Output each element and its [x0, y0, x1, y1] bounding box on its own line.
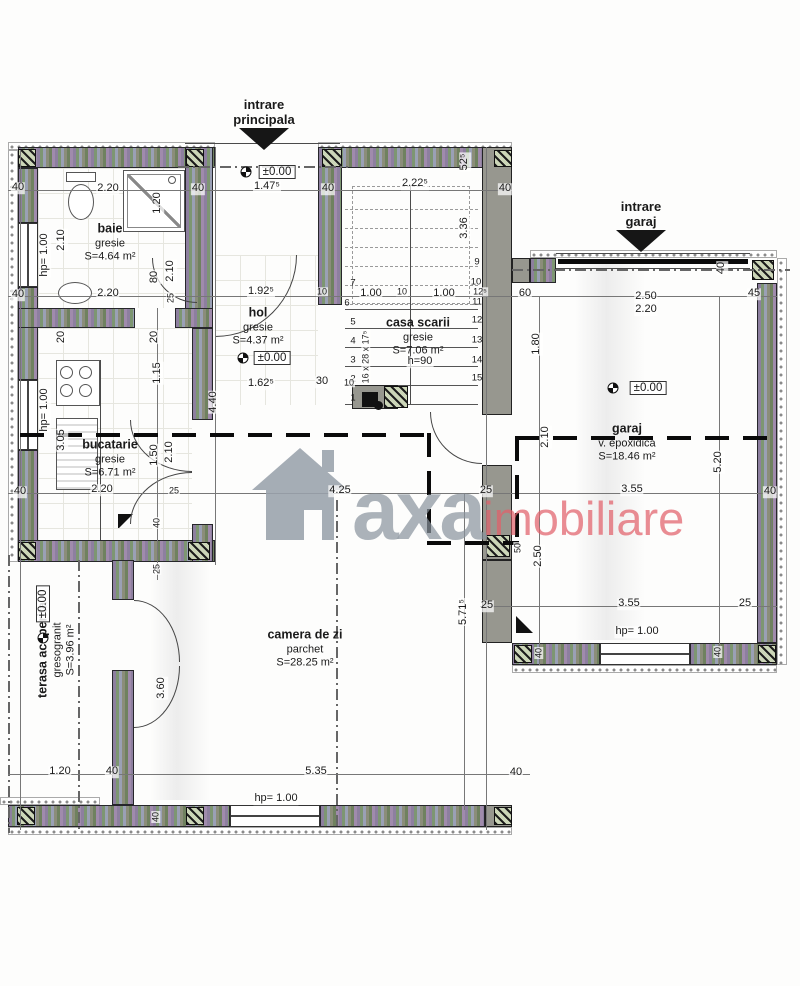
column-segment	[322, 149, 342, 167]
column-segment	[186, 149, 204, 167]
entrance-arrow-icon	[239, 128, 289, 150]
room-finish: gresie	[232, 321, 283, 335]
dimension-label: 25	[168, 486, 180, 495]
section-line	[20, 433, 430, 437]
dimension-label: 2.20	[96, 183, 119, 195]
dimension-label: 60	[518, 288, 532, 300]
dimension-label: 1.47⁵	[253, 181, 281, 193]
entrance-label: intrareprincipala	[233, 98, 294, 128]
dimension-label: 2.10	[56, 228, 68, 251]
wall-segment	[18, 540, 215, 562]
stair-divider	[410, 186, 411, 404]
stair-tread	[345, 285, 478, 286]
entrance-label-line: intrare	[233, 98, 294, 113]
column-segment	[188, 542, 210, 560]
burner	[79, 366, 92, 379]
stair-number: 12	[472, 315, 483, 326]
dimension-label: 2.22⁵	[401, 178, 429, 190]
stair-number: 11	[472, 297, 482, 308]
room-finish: parchet	[267, 643, 342, 657]
dimension-label: 40	[321, 183, 335, 195]
insulation-segment	[777, 258, 787, 665]
dim-line	[8, 493, 777, 494]
dimension-label: 40	[713, 646, 722, 658]
room-finish: v. epoxidica	[598, 437, 655, 451]
dimension-label: 20	[149, 330, 161, 344]
wall-segment	[112, 560, 134, 600]
column-segment	[758, 645, 776, 663]
column-segment	[384, 386, 408, 408]
room-name: bucatarie	[82, 437, 138, 453]
window-segment	[18, 380, 38, 450]
dimension-label: hp= 1.00	[614, 626, 659, 638]
room-area: S=4.37 m²	[232, 335, 283, 349]
entrance-label: intraregaraj	[621, 200, 661, 230]
dimension-label: 2.10	[164, 440, 176, 463]
stair-number: 15	[472, 373, 483, 384]
dimension-label: 20	[56, 330, 68, 344]
dimension-label: 1.80	[531, 332, 543, 355]
wall-segment	[175, 308, 213, 328]
dimension-label: 1.62⁵	[247, 378, 275, 390]
room-label-casa-scarii: casa scariigresieS=7.06 m²	[386, 315, 450, 358]
wall-block	[362, 392, 378, 407]
wall-segment	[112, 670, 134, 805]
level-marker-label: ±0.00	[254, 351, 291, 365]
level-marker-label: ±0.00	[630, 381, 667, 395]
dimension-label: 25	[166, 292, 175, 304]
dimension-label: 25	[479, 485, 493, 497]
wall-segment	[757, 283, 777, 643]
level-marker-label: ±0.00	[259, 165, 296, 179]
level-marker-icon	[241, 167, 252, 178]
stair-tread	[345, 304, 478, 305]
dimension-label: 2.20	[90, 484, 113, 496]
dimension-label: 2.20	[634, 304, 657, 316]
dimension-label: 10	[343, 378, 355, 387]
dimension-label: 40	[716, 261, 728, 275]
floor-plan-canvas: 402.20401.47⁵402.22⁵52⁵401.202.10hp= 1.0…	[0, 0, 800, 986]
dimension-label: 5.20	[713, 450, 725, 473]
door-arc-garaj	[430, 412, 482, 464]
dimension-label: 40	[11, 289, 25, 301]
dimension-label: 2.50	[634, 291, 657, 303]
window-segment	[600, 643, 690, 665]
axis-line	[512, 269, 790, 271]
room-finish: gresie	[386, 331, 450, 345]
dimension-label: 40	[152, 517, 161, 529]
room-label-baie: baiegresieS=4.64 m²	[84, 221, 135, 264]
stair-number: 13	[472, 335, 483, 346]
level-marker-label: ±0.00	[36, 586, 50, 623]
entrance-arrow-icon	[616, 230, 666, 252]
room-finish: gresogranit	[51, 602, 65, 698]
dim-line	[771, 490, 772, 610]
room-name: garaj	[598, 421, 655, 437]
dimension-label: 1.50	[149, 443, 161, 466]
room-area: S=6.71 m²	[82, 467, 138, 481]
level-marker-icon	[238, 353, 249, 364]
stair-number: 9	[474, 257, 479, 268]
column-segment	[486, 535, 510, 557]
dimension-label: 16 x 28 x 17⁵	[361, 330, 370, 385]
stair-tread	[345, 209, 478, 210]
dimension-label: 1.20	[152, 191, 164, 214]
stair-number: 4	[350, 336, 355, 347]
stair-tread	[345, 247, 478, 248]
dimension-label: 40	[498, 183, 512, 195]
room-finish: gresie	[82, 453, 138, 467]
wall-segment	[318, 147, 342, 305]
shower-drain	[168, 176, 176, 184]
window-segment	[18, 223, 38, 287]
dimension-label: 40	[534, 647, 543, 659]
burner	[60, 384, 73, 397]
room-area: S=4.64 m²	[84, 251, 135, 265]
dimension-label: 2.20	[96, 288, 119, 300]
room-name: camera de zi	[267, 627, 342, 643]
dimension-label: 40	[13, 486, 27, 498]
stair-number: 7	[350, 278, 355, 289]
dimension-label: 10	[316, 287, 328, 296]
dimension-label: hp= 1.00	[39, 232, 51, 277]
insulation-segment	[0, 797, 100, 805]
dimension-label: 25	[152, 563, 161, 575]
dimension-label: 3.36	[459, 216, 471, 239]
burner	[60, 366, 73, 379]
dimension-label: 1.00	[359, 288, 382, 300]
section-line	[427, 433, 431, 545]
dimension-label: 1.15	[152, 361, 164, 384]
dim-line	[215, 147, 216, 565]
dimension-label: 40	[105, 766, 119, 778]
dimension-label: 5.35	[304, 766, 327, 778]
room-area: S=18.46 m²	[598, 451, 655, 465]
dimension-label: 2.10	[540, 425, 552, 448]
dimension-label: 30	[315, 376, 329, 388]
insulation-segment	[8, 827, 512, 835]
dimension-label: 3.55	[620, 484, 643, 496]
dimension-label: 2.50	[533, 544, 545, 567]
room-label-garaj: garajv. epoxidicaS=18.46 m²	[598, 421, 655, 464]
insulation-segment	[8, 150, 18, 562]
insulation-segment	[512, 665, 777, 673]
section-line	[427, 541, 519, 545]
section-line	[515, 437, 519, 545]
dim-line	[719, 296, 720, 665]
column-segment	[514, 645, 532, 663]
wall-segment	[18, 287, 38, 380]
dimension-label: 50	[513, 542, 522, 554]
dimension-label: 1.92⁵	[247, 286, 275, 298]
dimension-label: 4.25	[328, 485, 351, 497]
dimension-label: 4.40	[208, 390, 220, 413]
level-marker-icon	[38, 633, 49, 644]
dimension-label: 2.10	[165, 259, 177, 282]
dimension-label: 40	[191, 183, 205, 195]
burner	[79, 384, 92, 397]
room-label-hol: holgresieS=4.37 m²	[232, 305, 283, 348]
dimension-label: 25	[738, 598, 752, 610]
wall-segment	[18, 168, 38, 223]
terrace-edge	[8, 555, 10, 833]
room-area: S=28.25 m²	[267, 657, 342, 671]
dimension-label: 40	[11, 182, 25, 194]
stair-number: 6	[344, 298, 349, 309]
corner-marker	[516, 616, 533, 633]
column-segment	[186, 807, 204, 825]
stair-number: 1	[350, 393, 355, 404]
dimension-label: 3.55	[617, 598, 640, 610]
dimension-label: 45	[747, 288, 761, 300]
entrance-label-line: principala	[233, 113, 294, 128]
window-segment	[230, 805, 320, 827]
room-name: baie	[84, 221, 135, 237]
dimension-label: 52⁵	[459, 153, 471, 172]
room-label-bucatarie: bucatariegresieS=6.71 m²	[82, 437, 138, 480]
wall-segment	[18, 308, 135, 328]
dimension-label: hp= 1.00	[39, 387, 51, 432]
stair-number: 3	[350, 355, 355, 366]
stair-number: 14	[472, 355, 483, 366]
dimension-label: hp= 1.00	[253, 793, 298, 805]
dimension-label: 5.71⁵	[458, 598, 470, 626]
room-label-camera-de-zi: camera de ziparchetS=28.25 m²	[267, 627, 342, 670]
dimension-label: 12⁵	[472, 287, 488, 296]
level-marker-icon	[608, 383, 619, 394]
dimension-label: 1.20	[48, 766, 71, 778]
room-name: hol	[232, 305, 283, 321]
room-area: S=3.96 m²	[65, 602, 79, 698]
room-area: S=7.06 m²	[386, 345, 450, 359]
room-finish: gresie	[84, 237, 135, 251]
dimension-label: 40	[763, 486, 777, 498]
dim-line	[8, 774, 530, 775]
room-name: casa scarii	[386, 315, 450, 331]
stair-number: 5	[350, 317, 355, 328]
dimension-label: 3.05	[56, 428, 68, 451]
dimension-label: 3.60	[156, 676, 168, 699]
entrance-label-line: intrare	[621, 200, 661, 215]
column-segment	[494, 150, 512, 167]
dimension-label: 25	[480, 600, 494, 612]
dimension-label: 1.00	[432, 288, 455, 300]
garage-door-line	[556, 253, 750, 254]
dimension-label: 40	[151, 811, 160, 823]
stair-tread	[345, 266, 478, 267]
toilet-tank	[66, 172, 96, 182]
dimension-label: 80	[149, 270, 161, 284]
column-segment	[494, 807, 512, 825]
dim-line	[8, 296, 777, 297]
wall-segment	[320, 805, 485, 827]
sink	[58, 282, 92, 304]
stair-tread	[345, 309, 478, 310]
dimension-label: 10	[396, 287, 408, 296]
entrance-label-line: garaj	[621, 215, 661, 230]
dimension-label: 40	[509, 767, 523, 779]
